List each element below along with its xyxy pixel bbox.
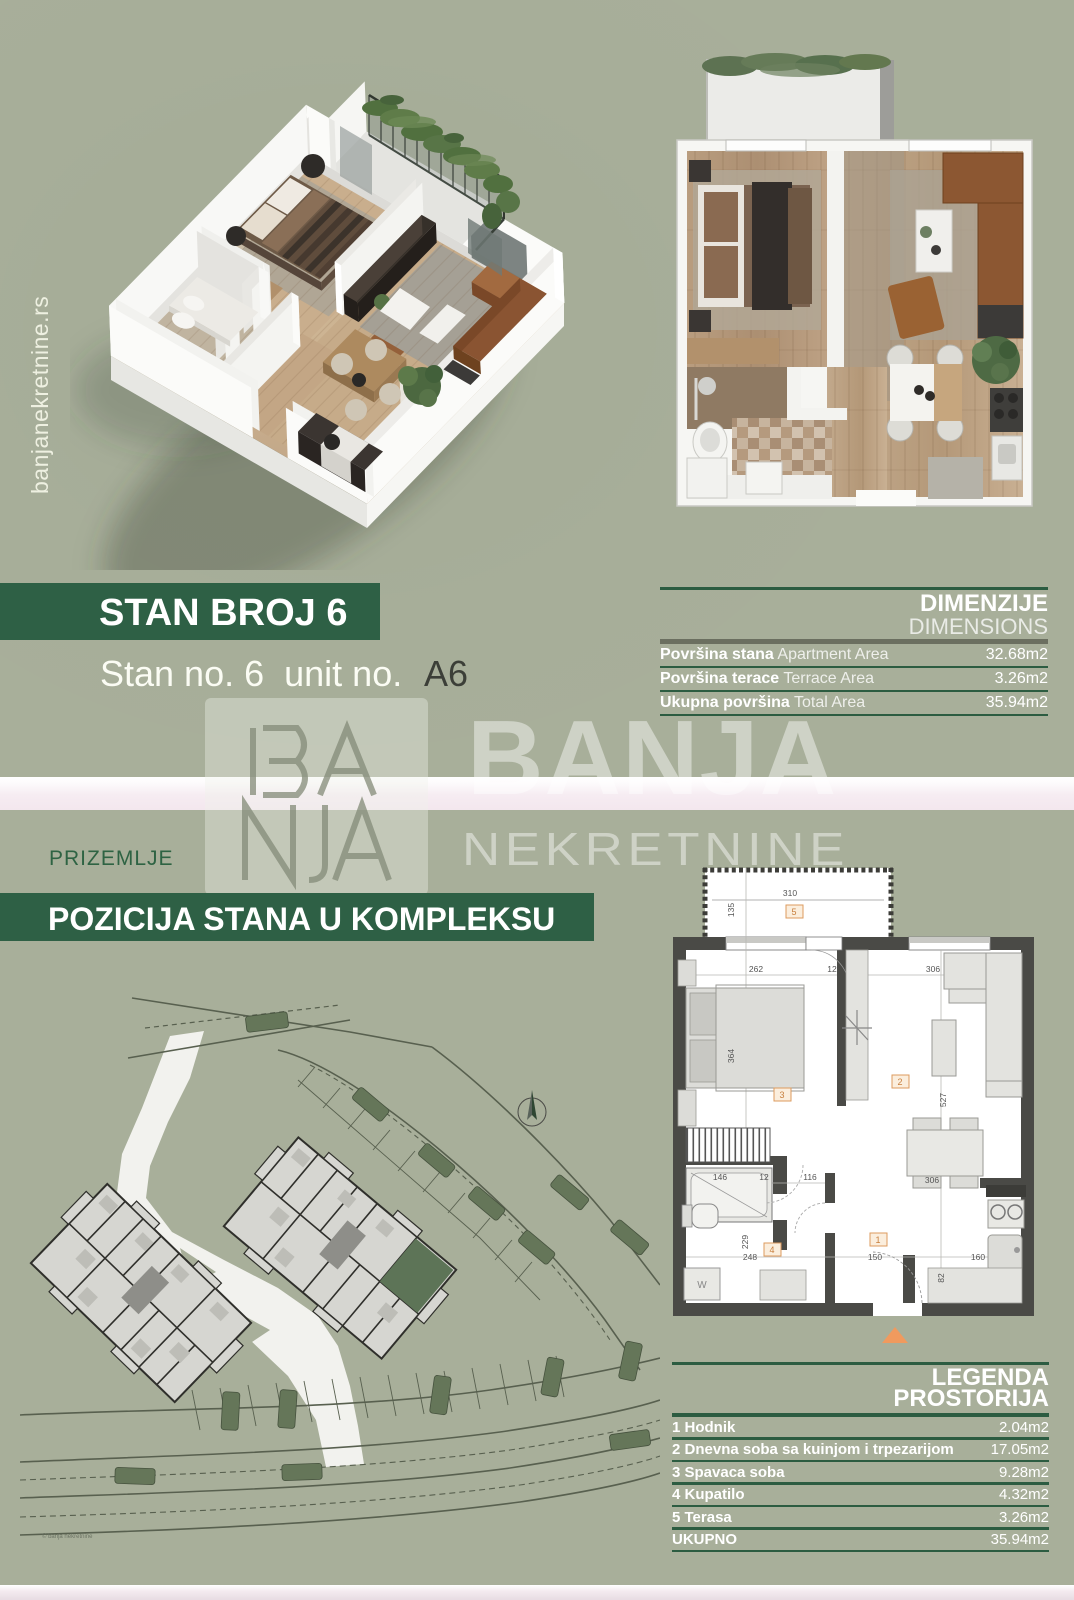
svg-text:2: 2 bbox=[897, 1077, 902, 1087]
svg-text:229: 229 bbox=[740, 1235, 750, 1249]
svg-text:146: 146 bbox=[713, 1172, 727, 1182]
svg-text:262: 262 bbox=[749, 964, 763, 974]
svg-text:5: 5 bbox=[791, 907, 796, 917]
svg-text:12: 12 bbox=[827, 964, 837, 974]
svg-text:248: 248 bbox=[743, 1252, 757, 1262]
svg-text:527: 527 bbox=[938, 1093, 948, 1107]
svg-text:12: 12 bbox=[759, 1172, 769, 1182]
svg-text:W: W bbox=[697, 1280, 707, 1291]
svg-text:310: 310 bbox=[783, 888, 797, 898]
svg-text:135: 135 bbox=[726, 903, 736, 917]
svg-text:© banja nekretnine: © banja nekretnine bbox=[42, 1533, 93, 1540]
svg-text:160: 160 bbox=[971, 1252, 985, 1262]
svg-text:364: 364 bbox=[726, 1049, 736, 1063]
svg-text:3: 3 bbox=[779, 1090, 784, 1100]
svg-text:1: 1 bbox=[875, 1235, 880, 1245]
svg-text:306: 306 bbox=[926, 964, 940, 974]
svg-text:4: 4 bbox=[769, 1245, 774, 1255]
svg-text:116: 116 bbox=[803, 1172, 817, 1182]
svg-text:82: 82 bbox=[936, 1273, 946, 1283]
svg-text:306: 306 bbox=[925, 1175, 939, 1185]
svg-text:150: 150 bbox=[868, 1252, 882, 1262]
